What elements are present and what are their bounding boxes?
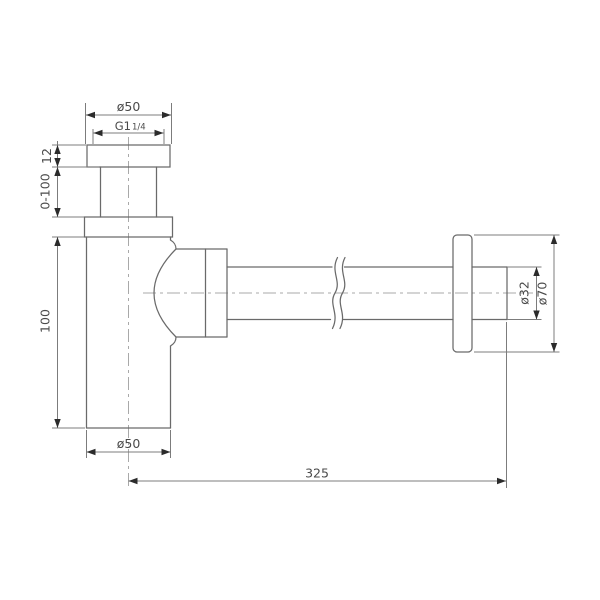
label-top-diameter: ø50 [117, 99, 141, 114]
dim-arrow [54, 158, 60, 167]
dim-arrow [551, 235, 557, 244]
dim-arrow [497, 478, 506, 484]
label-body-diameter: ø50 [117, 436, 141, 451]
dim-arrow [54, 419, 60, 428]
dim-arrow [87, 449, 96, 455]
dim-arrow [54, 167, 60, 176]
dim-arrow [94, 130, 103, 136]
label-thread-fraction: 1/4 [132, 123, 146, 133]
dim-arrow [129, 478, 138, 484]
dim-arrow [533, 311, 539, 320]
dim-arrow [162, 449, 171, 455]
label-flange-height: 12 [39, 148, 54, 164]
bottle-trap-technical-drawing: ø50 G1 1/4 12 0-100 100 ø50 325 ø32 ø70 [0, 0, 600, 600]
label-body-height: 100 [38, 309, 53, 333]
part-outline [85, 145, 508, 428]
dim-arrow [533, 267, 539, 276]
label-thread: G1 [115, 119, 131, 133]
dim-arrow [155, 130, 164, 136]
dim-arrow [86, 112, 95, 118]
label-horizontal-length: 325 [305, 466, 329, 481]
dim-arrow [162, 112, 171, 118]
dim-arrow [54, 145, 60, 154]
label-wall-flange-diameter: ø70 [535, 282, 550, 306]
dim-arrow [551, 343, 557, 352]
label-pipe-diameter: ø32 [517, 281, 532, 305]
drawing-canvas: ø50 G1 1/4 12 0-100 100 ø50 325 ø32 ø70 [0, 0, 600, 600]
dim-arrow [54, 208, 60, 217]
dimension-labels: ø50 G1 1/4 12 0-100 100 ø50 325 ø32 ø70 [38, 99, 550, 481]
label-adjustable-height: 0-100 [38, 173, 53, 209]
dim-arrow [54, 237, 60, 246]
dimension-lines [58, 115, 555, 481]
